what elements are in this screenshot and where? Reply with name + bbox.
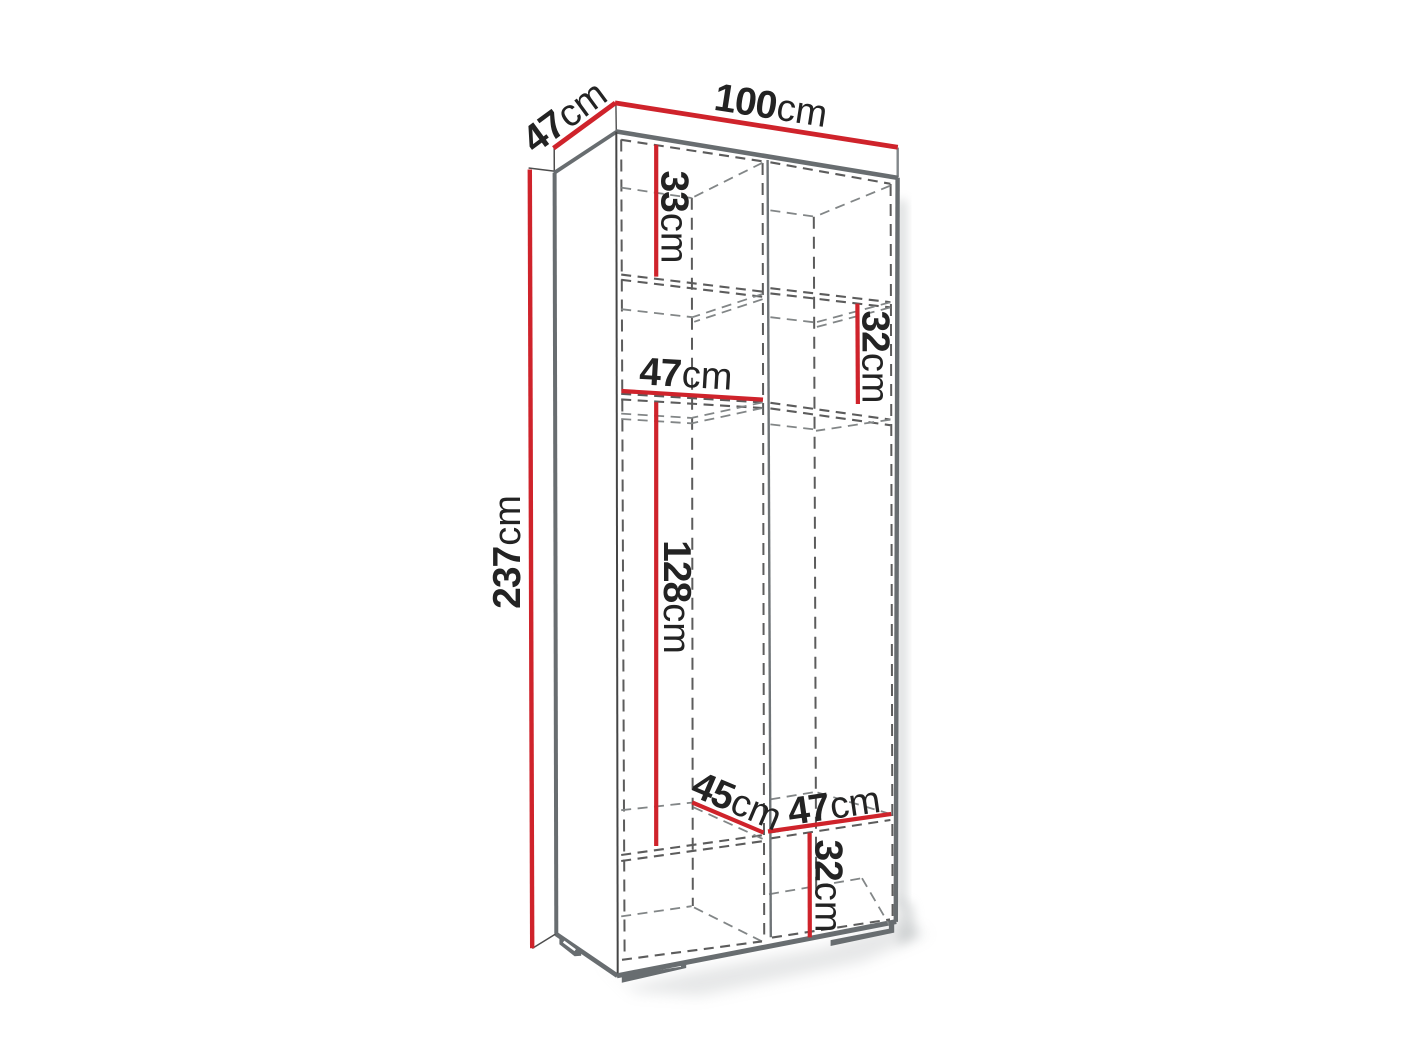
svg-text:128cm: 128cm (655, 540, 698, 654)
svg-text:32cm: 32cm (854, 310, 897, 403)
svg-text:33cm: 33cm (653, 170, 696, 263)
svg-text:47cm: 47cm (638, 350, 733, 398)
svg-text:32cm: 32cm (807, 839, 850, 932)
svg-text:237cm: 237cm (486, 495, 529, 609)
